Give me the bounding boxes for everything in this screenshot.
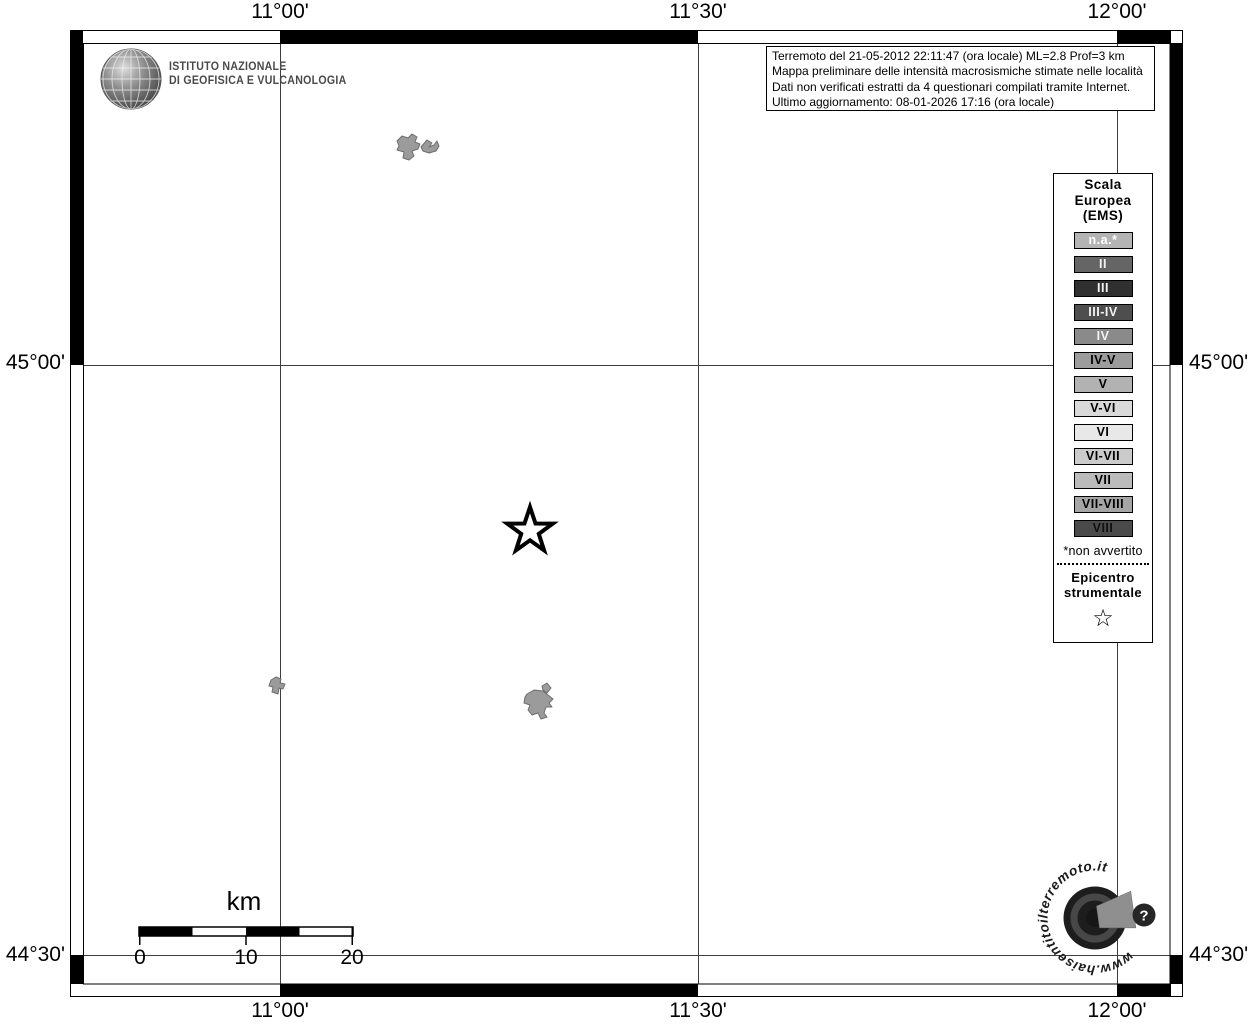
ingv-wordmark: ISTITUTO NAZIONALE DI GEOFISICA E VULCAN… [169,61,347,88]
question-mark: ? [1139,908,1148,925]
legend-item-viii: VIII [1074,520,1133,537]
legend-title-line1: Scala [1054,177,1152,193]
epicenter-label-line2: strumentale [1054,585,1152,601]
locality-polygons [269,134,553,719]
epicenter-star-icon: ☆ [1054,605,1152,631]
locality-polygon-north [397,134,439,160]
locality-polygon-south [524,683,553,719]
legend-footnote: *non avvertito [1054,544,1152,558]
scale-bar-tick-10: 10 [234,946,257,970]
axis-label-top-12-00: 12°00' [1087,1,1146,23]
watermark-logo: ? www.haisentitoilterremoto.it [1035,858,1155,977]
map-canvas: ? www.haisentitoilterremoto.it 11°00' 11… [0,0,1255,1024]
legend-title: Scala Europea (EMS) [1054,177,1152,224]
legend-title-line2: Europea [1054,193,1152,209]
ingv-globe-icon [101,49,161,109]
epicenter-label-line1: Epicentro [1054,570,1152,586]
legend-item-vi: VI [1074,424,1133,441]
legend-divider [1057,563,1149,565]
graticule-lines [83,43,1170,984]
axis-label-left-44-30: 44°30' [0,944,65,966]
legend-item-iii-iv: III-IV [1074,304,1133,321]
map-frame [70,30,1183,997]
legend-item-ii: II [1074,256,1133,273]
map-description-line: Mappa preliminare delle intensità macros… [772,64,1154,79]
legend-item-vii-viii: VII-VIII [1074,496,1133,513]
axis-label-left-45-00: 45°00' [0,352,65,374]
legend-title-line3: (EMS) [1054,208,1152,224]
legend-item-v-vi: V-VI [1074,400,1133,417]
scale-bar-tick-20: 20 [340,946,363,970]
event-info-box: Terremoto del 21-05-2012 22:11:47 (ora l… [766,46,1155,111]
legend-item-na: n.a.* [1074,232,1133,249]
legend-item-v: V [1074,376,1133,393]
scale-bar-unit: km [227,886,262,917]
scale-bar-tick-0: 0 [134,946,146,970]
scale-bar [139,927,353,945]
locality-polygon-west [269,677,285,694]
last-update-line: Ultimo aggiornamento: 08-01-2026 17:16 (… [772,95,1154,110]
legend-item-vi-vii: VI-VII [1074,448,1133,465]
event-summary-line: Terremoto del 21-05-2012 22:11:47 (ora l… [772,49,1154,64]
axis-label-right-44-30: 44°30' [1189,944,1248,966]
axis-label-bottom-12-00: 12°00' [1087,1000,1146,1022]
epicenter-star [507,507,553,550]
axis-label-bottom-11-00: 11°00' [251,1000,309,1022]
axis-label-top-11-30: 11°30' [669,1,727,23]
ems-legend: Scala Europea (EMS) n.a.* II III III-IV … [1053,173,1153,643]
data-disclaimer-line: Dati non verificati estratti da 4 questi… [772,80,1154,95]
legend-item-iii: III [1074,280,1133,297]
legend-item-vii: VII [1074,472,1133,489]
ingv-wordmark-line1: ISTITUTO NAZIONALE [169,61,347,75]
axis-label-right-45-00: 45°00' [1189,352,1248,374]
axis-label-bottom-11-30: 11°30' [669,1000,727,1022]
legend-item-iv: IV [1074,328,1133,345]
legend-items: n.a.* II III III-IV IV IV-V V V-VI VI VI… [1054,232,1152,537]
ingv-wordmark-line2: DI GEOFISICA E VULCANOLOGIA [169,75,347,89]
legend-item-iv-v: IV-V [1074,352,1133,369]
epicenter-label: Epicentro strumentale [1054,570,1152,601]
axis-label-top-11-00: 11°00' [251,1,309,23]
